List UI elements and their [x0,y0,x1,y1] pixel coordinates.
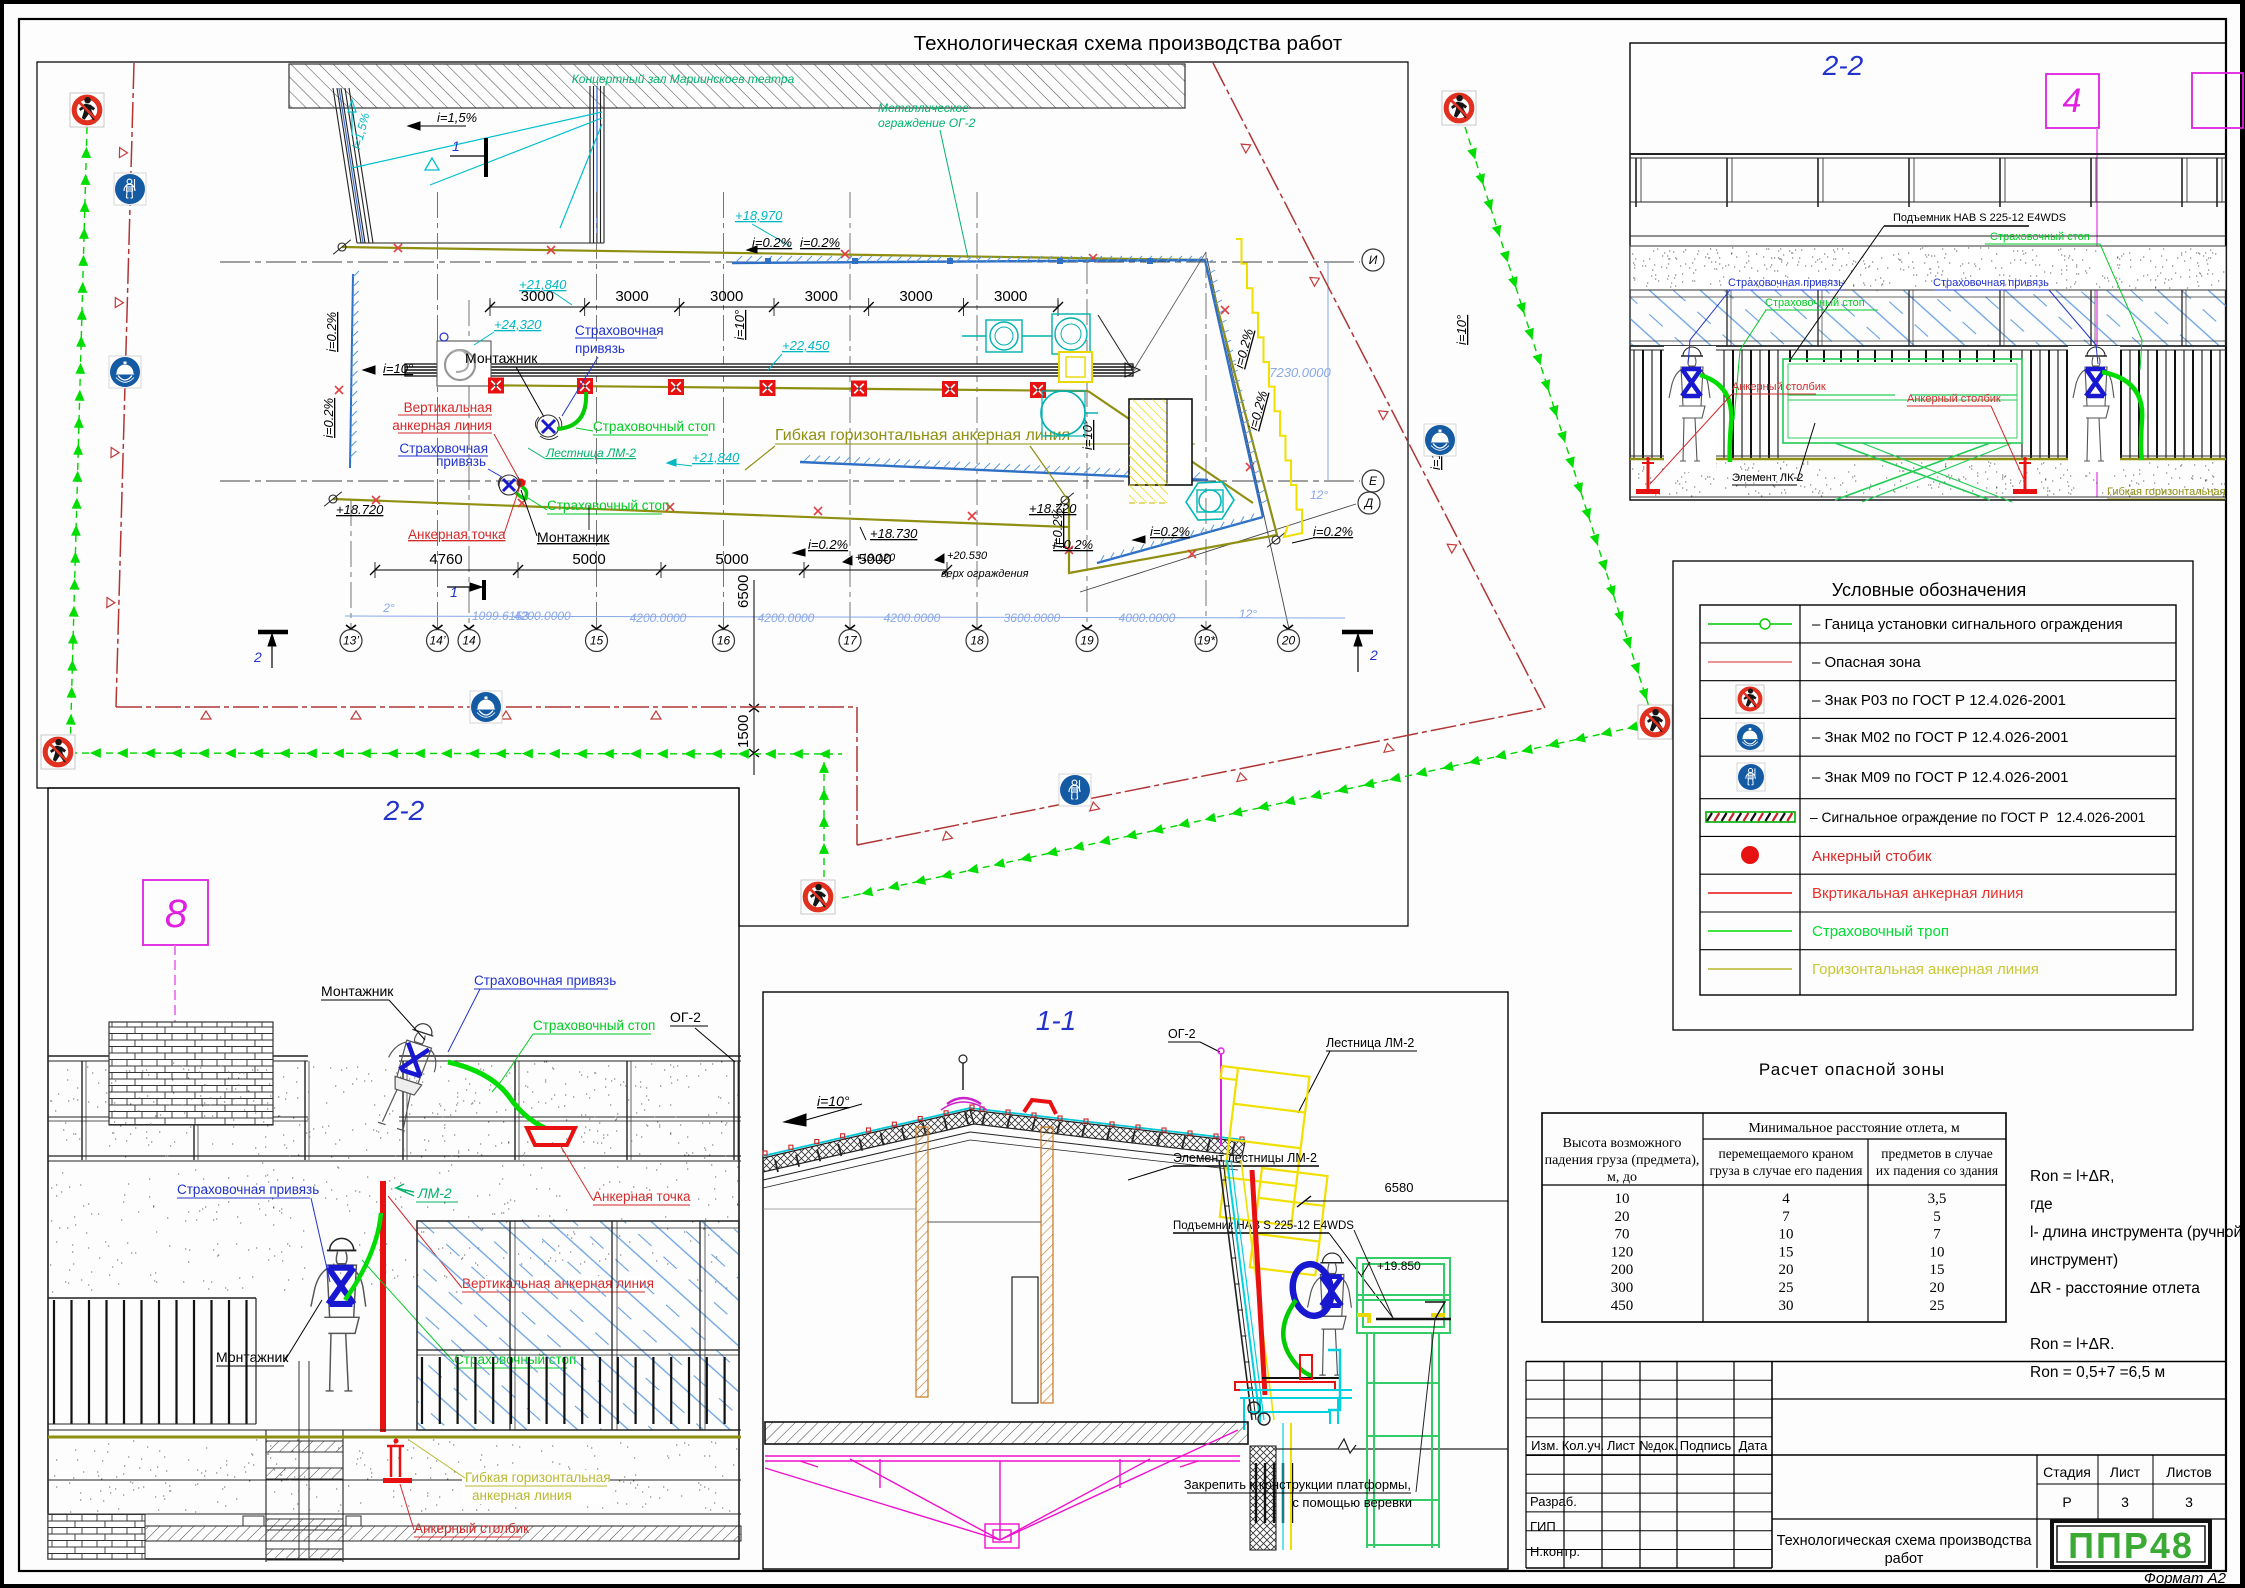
svg-text:Минимальное расстояние отлета,: Минимальное расстояние отлета, м [1748,1121,1960,1136]
svg-text:i=0.2%: i=0.2% [1053,537,1093,552]
svg-text:Лестница ЛМ-2: Лестница ЛМ-2 [1326,1036,1414,1050]
svg-text:Закрепить к конструкции платфо: Закрепить к конструкции платформы, [1184,1477,1411,1492]
svg-text:1: 1 [450,584,458,600]
svg-text:Лист: Лист [1607,1438,1635,1453]
svg-text:перемещаемого краном: перемещаемого краном [1718,1146,1854,1161]
svg-text:120: 120 [1611,1244,1634,1260]
svg-text:l- длина инструмента (ручной: l- длина инструмента (ручной [2030,1224,2242,1241]
svg-text:Концертный зал Мариинскоев теа: Концертный зал Мариинскоев театра [572,72,795,86]
svg-text:Страховочный стоп: Страховочный стоп [1990,231,2090,243]
svg-text:Страховочная привязь: Страховочная привязь [1728,277,1844,289]
svg-text:привязь: привязь [575,341,625,356]
svg-text:300: 300 [1611,1280,1634,1296]
svg-text:Вкртикальная анкерная линия: Вкртикальная анкерная линия [1812,885,2023,902]
svg-text:Формат А2: Формат А2 [2144,1570,2227,1587]
svg-text:4: 4 [2063,82,2082,120]
svg-text:Лист: Лист [2110,1464,2141,1480]
svg-text:1-1: 1-1 [1036,1005,1076,1036]
svg-text:Монтажник: Монтажник [465,350,538,366]
svg-text:10: 10 [1930,1244,1945,1260]
svg-text:4200.0000: 4200.0000 [758,611,815,625]
svg-text:14’: 14’ [429,634,445,648]
svg-text:+22,450: +22,450 [782,338,830,353]
svg-text:5: 5 [1933,1209,1941,1225]
svg-text:их падения со здания: их падения со здания [1876,1163,1998,1178]
svg-text:анкерная линия: анкерная линия [392,418,492,433]
svg-text:3600.0000: 3600.0000 [1004,611,1061,625]
svg-text:6500: 6500 [735,575,752,608]
svg-text:+18.730: +18.730 [870,526,918,541]
svg-text:2-2: 2-2 [1822,50,1864,81]
svg-text:19*: 19* [1197,634,1215,648]
svg-text:25: 25 [1930,1298,1945,1314]
svg-text:3: 3 [2185,1494,2193,1510]
svg-text:2: 2 [1369,647,1378,663]
svg-text:i=0.2%: i=0.2% [1150,524,1190,539]
svg-text:4200.0000: 4200.0000 [630,611,687,625]
svg-text:Стадия: Стадия [2043,1464,2091,1480]
svg-text:10: 10 [1779,1227,1794,1243]
svg-text:ППР48: ППР48 [2068,1525,2194,1566]
svg-text:30: 30 [1779,1298,1794,1314]
svg-text:1500: 1500 [735,715,752,748]
svg-text:Кол.уч.: Кол.уч. [1562,1438,1605,1453]
svg-text:+18,970: +18,970 [735,208,783,223]
svg-text:м, до: м, до [1607,1170,1637,1185]
svg-text:3000: 3000 [615,288,648,305]
svg-text:Монтажник: Монтажник [216,1349,289,1365]
svg-text:+21,840: +21,840 [519,277,567,292]
svg-text:груза в случае его падения: груза в случае его падения [1710,1163,1863,1178]
svg-text:20: 20 [1779,1262,1794,1278]
svg-text:20: 20 [1615,1209,1630,1225]
svg-text:4000.0000: 4000.0000 [1119,611,1176,625]
svg-text:+21,840: +21,840 [692,450,740,465]
svg-text:+19.850: +19.850 [1377,1259,1421,1273]
svg-text:Вертикальная: Вертикальная [404,400,492,415]
svg-text:предметов в случае: предметов в случае [1881,1146,1992,1161]
svg-text:Е: Е [1369,474,1378,488]
svg-text:где: где [2030,1196,2053,1213]
svg-text:i=10°: i=10° [1454,315,1469,345]
svg-text:3: 3 [2121,1494,2129,1510]
svg-text:Монтажник: Монтажник [321,983,394,999]
svg-text:19: 19 [1080,634,1094,648]
svg-text:Высота возможного: Высота возможного [1563,1136,1682,1151]
svg-text:инструмент): инструмент) [2030,1252,2118,1269]
svg-text:20: 20 [1281,634,1296,648]
svg-text:+24,320: +24,320 [494,317,542,332]
svg-text:Подпись: Подпись [1680,1438,1732,1453]
svg-text:№док.: №док. [1639,1438,1677,1453]
svg-text:8: 8 [165,892,188,936]
svg-text:i=10°: i=10° [383,361,413,376]
svg-text:5000: 5000 [858,551,891,568]
svg-text:Страховочная: Страховочная [575,323,664,338]
svg-text:4760: 4760 [429,551,462,568]
svg-text:3000: 3000 [710,288,743,305]
svg-text:4200.0000: 4200.0000 [884,611,941,625]
svg-text:Монтажник: Монтажник [537,529,610,545]
svg-text:+20.530: +20.530 [947,550,988,562]
svg-text:4: 4 [1782,1191,1790,1207]
svg-text:15: 15 [1779,1244,1794,1260]
svg-text:i=1,5%: i=1,5% [437,110,477,125]
svg-text:ОГ-2: ОГ-2 [670,1009,701,1025]
svg-text:Листов: Листов [2166,1464,2212,1480]
svg-text:– Ганица установки сигнального: – Ганица установки сигнального ограждени… [1812,616,2123,633]
svg-text:2°: 2° [382,601,395,615]
svg-text:20: 20 [1930,1280,1945,1296]
svg-text:– Знак М02 по ГОСТ Р 12.4.026-: – Знак М02 по ГОСТ Р 12.4.026-2001 [1812,729,2068,746]
svg-text:ГИП: ГИП [1530,1519,1556,1534]
svg-text:5000: 5000 [715,551,748,568]
svg-text:Металлическое: Металлическое [878,101,969,115]
svg-text:Страховочный стоп: Страховочный стоп [593,419,715,434]
svg-text:Гибкая горизонтальная анкерная: Гибкая горизонтальная анкерная линия [775,427,1070,444]
svg-text:Гибкая горизонтальная: Гибкая горизонтальная [465,1470,611,1485]
svg-text:5000: 5000 [572,551,605,568]
svg-text:+18.720: +18.720 [336,502,384,517]
svg-text:i=0.2%: i=0.2% [752,235,792,250]
svg-text:1: 1 [452,138,460,154]
svg-text:Технологическая схема производ: Технологическая схема производства [1777,1533,2033,1549]
svg-text:Анкерная точка: Анкерная точка [593,1189,691,1204]
svg-text:ОГ-2: ОГ-2 [1168,1027,1196,1041]
svg-text:Р: Р [2062,1494,2071,1510]
svg-text:i=0.2%: i=0.2% [321,398,336,438]
svg-text:Н.контр.: Н.контр. [1530,1544,1580,1559]
svg-text:3000: 3000 [899,288,932,305]
svg-text:Страховочная привязь: Страховочная привязь [177,1182,319,1197]
svg-text:– Знак М09 по ГОСТ Р 12.4.026-: – Знак М09 по ГОСТ Р 12.4.026-2001 [1812,769,2068,786]
svg-text:верх ограждения: верх ограждения [941,568,1029,580]
svg-text:25: 25 [1779,1280,1794,1296]
svg-text:18: 18 [970,634,984,648]
svg-text:Д: Д [1363,496,1374,510]
svg-text:Страховочный стоп: Страховочный стоп [533,1018,655,1033]
svg-text:200: 200 [1611,1262,1634,1278]
svg-text:Элемент лестницы ЛМ-2: Элемент лестницы ЛМ-2 [1173,1151,1317,1165]
svg-text:Анкерная точка: Анкерная точка [408,527,506,542]
svg-text:12°: 12° [1239,607,1257,621]
svg-text:Разраб.: Разраб. [1530,1494,1577,1509]
svg-text:7: 7 [1933,1227,1941,1243]
svg-text:Анкерный стобик: Анкерный стобик [1812,848,1932,865]
svg-text:с помощью веревки: с помощью веревки [1292,1495,1412,1510]
svg-text:Условные обозначения: Условные обозначения [1832,580,2026,600]
svg-text:Подъемник HAB S 225-12 E4WDS: Подъемник HAB S 225-12 E4WDS [1173,1220,1354,1232]
svg-text:Лестница ЛМ-2: Лестница ЛМ-2 [545,446,636,460]
svg-text:4200.0000: 4200.0000 [514,609,571,623]
svg-text:Анкерный столбик: Анкерный столбик [1732,381,1826,393]
svg-text:работ: работ [1885,1551,1924,1567]
svg-text:15: 15 [590,634,604,648]
svg-text:Горизонтальная анкерная линия: Горизонтальная анкерная линия [1812,961,2039,978]
svg-text:i=0.2%: i=0.2% [808,537,848,552]
svg-text:450: 450 [1611,1298,1634,1314]
svg-text:Подъемник HAB S 225-12 E4WDS: Подъемник HAB S 225-12 E4WDS [1893,212,2066,224]
svg-text:6580: 6580 [1385,1180,1414,1195]
svg-text:Технологическая схема производ: Технологическая схема производства работ [914,32,1343,55]
svg-text:– Опасная зона: – Опасная зона [1812,654,1921,671]
svg-text:Ron = l+ΔR.: Ron = l+ΔR. [2030,1336,2114,1353]
svg-text:ограждение ОГ-2: ограждение ОГ-2 [878,116,976,130]
svg-text:16: 16 [717,634,731,648]
svg-text:Анкерный столбик: Анкерный столбик [414,1521,529,1536]
svg-text:Страховочный троп: Страховочный троп [1812,923,1949,940]
svg-text:3000: 3000 [805,288,838,305]
svg-text:Гибкая горизонтальная: Гибкая горизонтальная [2107,486,2226,498]
svg-text:Расчет опасной зоны: Расчет опасной зоны [1759,1060,1945,1079]
svg-text:Ron = 0,5+7 =6,5 м: Ron = 0,5+7 =6,5 м [2030,1364,2165,1381]
svg-text:анкерная линия: анкерная линия [472,1488,572,1503]
svg-text:падения груза (предмета),: падения груза (предмета), [1545,1153,1700,1168]
svg-text:12°: 12° [1310,488,1328,502]
svg-text:i=0.2%: i=0.2% [1313,524,1353,539]
svg-text:10: 10 [1615,1191,1630,1207]
svg-text:– Сигнальное ограждение по ГОС: – Сигнальное ограждение по ГОСТ Р 12.4.0… [1810,810,2145,825]
svg-text:Анкерный столбик: Анкерный столбик [1907,393,2001,405]
svg-text:i=10°: i=10° [732,310,747,340]
svg-text:2: 2 [253,649,262,665]
svg-text:– Знак Р03 по ГОСТ Р 12.4.026-: – Знак Р03 по ГОСТ Р 12.4.026-2001 [1812,692,2066,709]
svg-text:Дата: Дата [1739,1438,1769,1453]
svg-text:2-2: 2-2 [383,795,425,826]
svg-text:Изм.: Изм. [1531,1438,1559,1453]
svg-text:3000: 3000 [994,288,1027,305]
svg-text:3,5: 3,5 [1928,1191,1947,1207]
svg-text:70: 70 [1615,1227,1630,1243]
svg-text:7230.0000: 7230.0000 [1269,365,1331,380]
svg-text:i=0.2%: i=0.2% [324,312,339,352]
svg-text:Элемент ЛК-2: Элемент ЛК-2 [1732,472,1803,484]
svg-text:ΔR - расстояние отлета: ΔR - расстояние отлета [2030,1280,2200,1297]
svg-text:i=0.2%: i=0.2% [800,235,840,250]
svg-text:И: И [1369,253,1378,267]
svg-text:7: 7 [1782,1209,1790,1225]
svg-text:15: 15 [1930,1262,1945,1278]
svg-text:Страховочный стоп: Страховочный стоп [547,498,669,513]
svg-text:13’: 13’ [343,634,359,648]
svg-text:Ron = l+ΔR,: Ron = l+ΔR, [2030,1168,2114,1185]
svg-text:17: 17 [843,634,858,648]
svg-text:Страховочный стоп: Страховочный стоп [1765,297,1865,309]
svg-text:ЛМ-2: ЛМ-2 [417,1185,452,1201]
svg-text:Страховочная привязь: Страховочная привязь [474,973,616,988]
svg-text:14: 14 [462,634,476,648]
svg-text:i=10°: i=10° [817,1093,850,1109]
svg-text:Страховочная привязь: Страховочная привязь [1933,277,2049,289]
